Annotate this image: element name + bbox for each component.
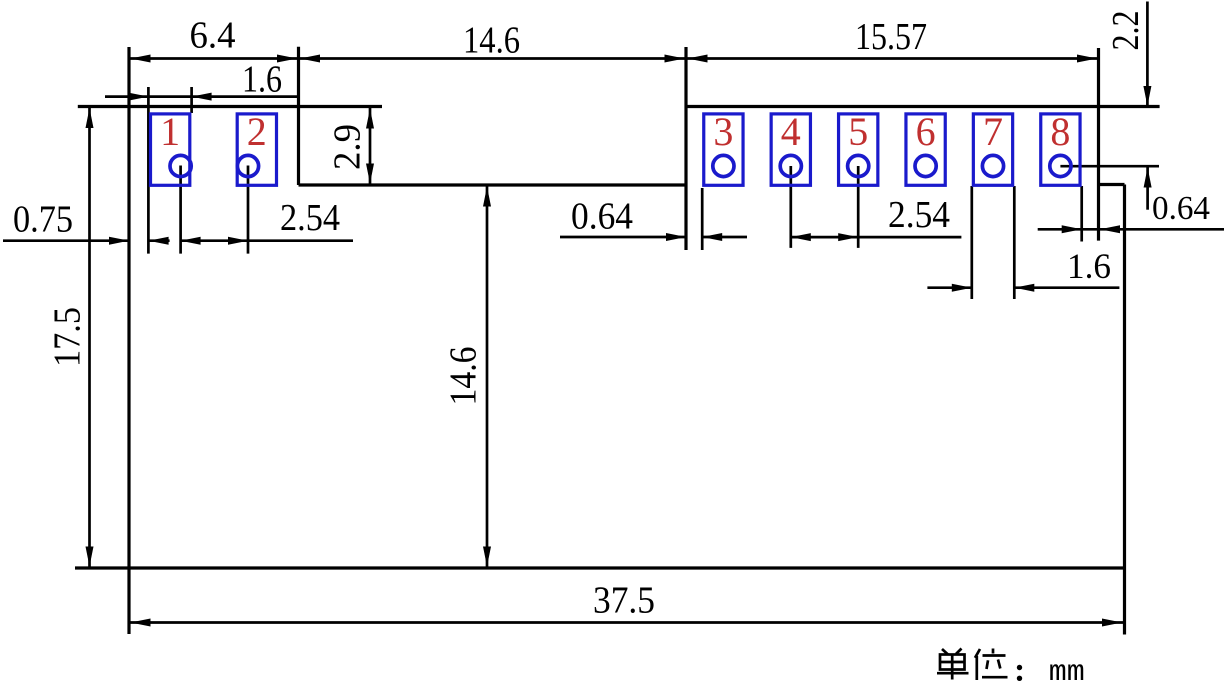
svg-text:3: 3 <box>713 109 733 154</box>
svg-text:2.54: 2.54 <box>280 197 340 239</box>
svg-text:0.64: 0.64 <box>1152 190 1210 227</box>
svg-text:2.9: 2.9 <box>327 124 369 170</box>
svg-text:15.57: 15.57 <box>855 16 927 58</box>
svg-text:37.5: 37.5 <box>593 580 655 622</box>
svg-text:1.6: 1.6 <box>242 59 282 101</box>
svg-text:2.2: 2.2 <box>1105 11 1147 51</box>
svg-text:14.6: 14.6 <box>463 20 520 62</box>
svg-text:1.6: 1.6 <box>1067 246 1111 286</box>
svg-text:14.6: 14.6 <box>443 347 485 406</box>
svg-text:2: 2 <box>247 109 267 154</box>
svg-text:5: 5 <box>848 109 868 154</box>
svg-text:2.54: 2.54 <box>888 194 950 236</box>
svg-text:17.5: 17.5 <box>47 307 89 367</box>
svg-text:0.64: 0.64 <box>571 196 633 238</box>
svg-text:mm: mm <box>1049 656 1085 690</box>
svg-text:7: 7 <box>983 109 1003 154</box>
svg-text:6: 6 <box>916 109 936 154</box>
svg-text:0.75: 0.75 <box>13 199 73 241</box>
svg-text:1: 1 <box>160 109 180 154</box>
svg-text:8: 8 <box>1050 109 1070 154</box>
svg-text:4: 4 <box>781 109 801 154</box>
svg-text:6.4: 6.4 <box>190 15 236 57</box>
